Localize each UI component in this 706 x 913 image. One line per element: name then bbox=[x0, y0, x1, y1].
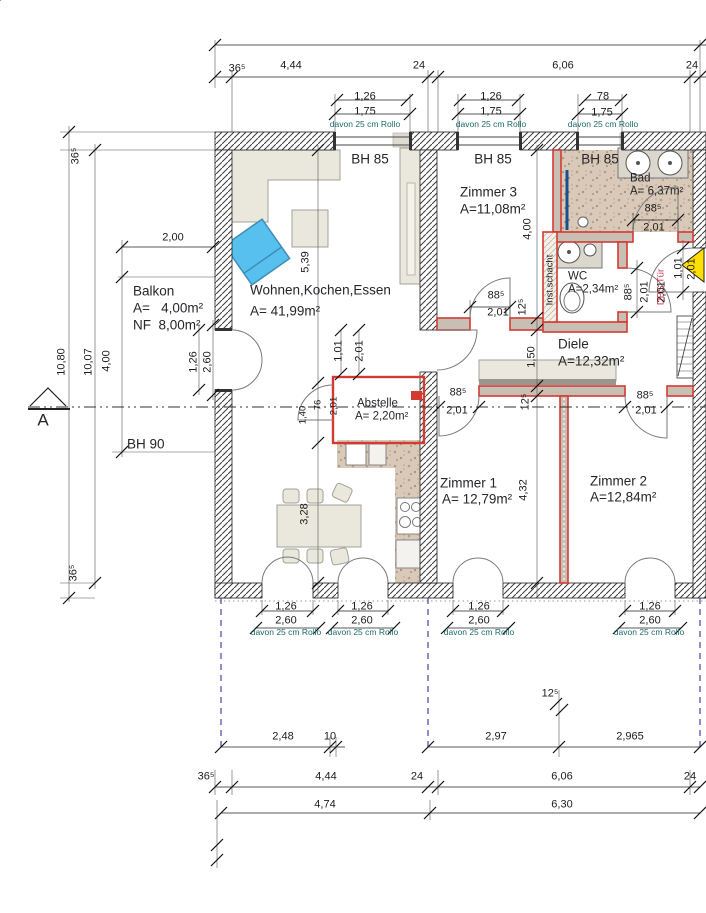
dim-label: davon 25 cm Rollo bbox=[444, 628, 514, 637]
room-label-diele: Diele bbox=[558, 337, 589, 351]
drain bbox=[668, 161, 672, 165]
window-bad bbox=[576, 132, 624, 150]
room-label-balkon: Balkon bbox=[133, 284, 174, 298]
dim-label: davon 25 cm Rollo bbox=[568, 120, 638, 129]
sill-label-bad: BH 85 bbox=[581, 152, 619, 166]
staircase bbox=[677, 316, 693, 378]
dim-label: 12⁵ bbox=[542, 689, 559, 700]
dim-label: A= 4,00m² bbox=[133, 301, 203, 315]
dim-label: 2,60 bbox=[468, 616, 489, 627]
dim-label: 1,26 bbox=[468, 602, 489, 613]
abstelle-marker bbox=[411, 391, 422, 400]
dim-label: 24 bbox=[684, 772, 696, 783]
dim-label: davon 25 cm Rollo bbox=[328, 628, 398, 637]
dim-label: 1,75 bbox=[591, 108, 612, 119]
dining-table bbox=[277, 505, 361, 547]
dim-label: 6,30 bbox=[551, 800, 572, 811]
dim-label: 36⁵ bbox=[69, 565, 80, 582]
balcony-door-zimmer2 bbox=[625, 558, 675, 583]
dim-label: 2,01 bbox=[640, 281, 651, 302]
window-zimmer3 bbox=[456, 132, 522, 150]
dim-label: 6,06 bbox=[552, 61, 573, 72]
sill-label-zimmer3: BH 85 bbox=[474, 152, 512, 166]
dim-label: 1,26 bbox=[354, 92, 375, 103]
dim-label: 4,00 bbox=[102, 350, 113, 371]
dim-label: 2,965 bbox=[616, 732, 644, 743]
chair bbox=[307, 549, 323, 563]
dim-label: davon 25 cm Rollo bbox=[614, 628, 684, 637]
door-zimmer2 bbox=[625, 396, 667, 438]
dim-label: 2,60 bbox=[351, 616, 372, 627]
section-letter: A bbox=[37, 412, 48, 429]
room-label-zimmer-1: Zimmer 1 bbox=[440, 476, 497, 490]
dim-label: A=12,84m² bbox=[590, 490, 656, 504]
dim-label: 4,00 bbox=[523, 218, 534, 239]
dim-label: A= 2,20m² bbox=[355, 411, 408, 423]
room-label-abstelle: Abstelle bbox=[357, 398, 398, 410]
balcony-door-left bbox=[215, 328, 262, 392]
dim-label: 24 bbox=[413, 61, 425, 72]
dim-label: 1,40 bbox=[298, 406, 308, 425]
dim-label: A=2,34m² bbox=[568, 284, 618, 296]
dim-label: 1,26 bbox=[275, 602, 296, 613]
dim-label: 1,01 bbox=[334, 340, 345, 361]
dim-label: A= 12,79m² bbox=[442, 492, 512, 506]
drain bbox=[636, 161, 640, 165]
room-label-wc: WC bbox=[568, 271, 587, 283]
dim-label: 88⁵ bbox=[645, 204, 662, 215]
room-label-wohnen: Wohnen,Kochen,Essen bbox=[250, 283, 391, 297]
chair bbox=[331, 482, 353, 503]
sill-label-wohnen: BH 85 bbox=[351, 152, 389, 166]
dim-label: 76 bbox=[313, 400, 323, 411]
dim-label: NF 8,00m² bbox=[133, 318, 201, 332]
dim-label: 2,60 bbox=[275, 616, 296, 627]
dim-label: 1,75 bbox=[354, 107, 375, 118]
cabinet-front bbox=[407, 183, 415, 275]
sill-label-balkon: BH 90 bbox=[127, 437, 165, 451]
dim-label: 2,01 bbox=[329, 397, 339, 416]
dim-label: 4,44 bbox=[315, 772, 336, 783]
dim-label: davon 25 cm Rollo bbox=[251, 628, 321, 637]
dim-label: 2,60 bbox=[203, 351, 214, 372]
dim-label: 2,97 bbox=[485, 732, 506, 743]
dim-label: 24 bbox=[686, 61, 698, 72]
dim-label: 2,01 bbox=[355, 340, 366, 361]
dim-label: 10,07 bbox=[84, 348, 95, 376]
dim-label: A= 6,37m² bbox=[630, 186, 683, 198]
dim-label: 6,06 bbox=[551, 772, 572, 783]
dim-label: 2,01 bbox=[643, 223, 664, 234]
floor-plan-drawing bbox=[0, 0, 706, 913]
dim-label: 78 bbox=[597, 92, 609, 103]
wardrobe-front bbox=[479, 379, 616, 385]
chair bbox=[330, 547, 350, 565]
dim-label: 36⁵ bbox=[229, 64, 246, 75]
room-label-bad: Bad bbox=[630, 173, 650, 185]
dim-label: 1,01 bbox=[674, 257, 685, 278]
dim-label: A=12,32m² bbox=[558, 354, 624, 368]
kitchen-sink bbox=[346, 444, 366, 465]
dim-label: davon 25 cm Rollo bbox=[330, 120, 400, 129]
dimension-ticks bbox=[0, 0, 706, 866]
dim-label: 10,80 bbox=[57, 348, 68, 376]
floor-plan: 36⁵4,44246,06241,261,75davon 25 cm Rollo… bbox=[0, 0, 706, 913]
chair bbox=[283, 549, 299, 563]
dim-label: davon 25 cm Rollo bbox=[456, 120, 526, 129]
dim-label: 36⁵ bbox=[71, 148, 82, 165]
chair bbox=[307, 489, 323, 503]
door-wohnen-diele bbox=[437, 330, 477, 370]
dim-label: A= 41,99m² bbox=[250, 304, 320, 318]
dim-label: 1,75 bbox=[480, 107, 501, 118]
room-label-zimmer-2: Zimmer 2 bbox=[590, 474, 647, 488]
dim-label: 88⁵ bbox=[624, 284, 635, 301]
dim-label: A=11,08m² bbox=[460, 202, 525, 216]
dim-label: 2,01 bbox=[487, 308, 508, 319]
dim-label: 2,01 bbox=[446, 406, 467, 417]
dim-label: 2,00 bbox=[162, 233, 183, 244]
dim-label: 2,01 bbox=[635, 406, 656, 417]
dim-label: 5,39 bbox=[301, 251, 312, 272]
dim-label: 1,26 bbox=[480, 92, 501, 103]
dim-label: 36⁵ bbox=[198, 772, 215, 783]
dim-label: 2,01 bbox=[657, 281, 668, 302]
dim-label: 1,26 bbox=[189, 351, 200, 372]
dim-label: 1,50 bbox=[527, 346, 538, 367]
dim-label: 10 bbox=[324, 732, 336, 743]
dim-label: 12⁵ bbox=[518, 299, 529, 316]
dim-label: 12⁵ bbox=[521, 394, 532, 411]
dim-label: 88⁵ bbox=[488, 291, 505, 302]
dim-label: 4,74 bbox=[314, 800, 335, 811]
dishwasher bbox=[369, 444, 386, 465]
dim-label: 88⁵ bbox=[450, 388, 467, 399]
chair bbox=[283, 489, 299, 503]
fixture bbox=[584, 244, 596, 256]
side-table bbox=[292, 210, 328, 247]
dim-label: 24 bbox=[411, 772, 423, 783]
dim-label: 1,26 bbox=[351, 602, 372, 613]
dim-label: 2,48 bbox=[272, 732, 293, 743]
dim-label: 3,28 bbox=[300, 503, 311, 524]
armchair bbox=[224, 219, 289, 285]
dim-label: 2,01 bbox=[687, 258, 698, 279]
dim-label: 1,26 bbox=[639, 602, 660, 613]
shaft-label: Inst.schacht bbox=[545, 255, 555, 306]
dim-label: 4,32 bbox=[519, 479, 530, 500]
dim-label: 88⁵ bbox=[637, 391, 654, 402]
dim-label: 2,60 bbox=[639, 616, 660, 627]
balcony-door-zimmer1 bbox=[453, 558, 503, 583]
drain bbox=[567, 250, 571, 254]
room-label-zimmer-3: Zimmer 3 bbox=[460, 185, 517, 199]
shower-head bbox=[578, 217, 588, 227]
dim-label: 4,44 bbox=[280, 61, 301, 72]
